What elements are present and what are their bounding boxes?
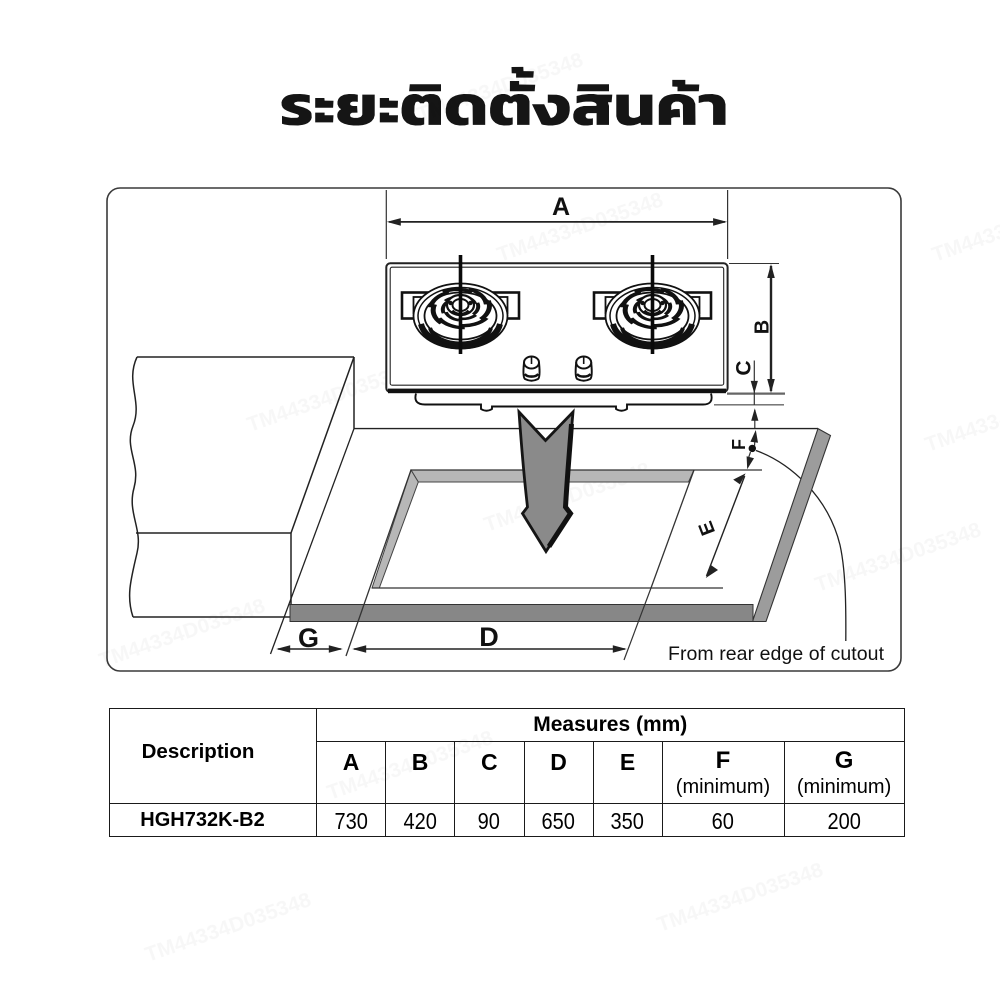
- svg-text:G: G: [298, 623, 319, 653]
- svg-text:A: A: [552, 193, 570, 221]
- svg-text:E: E: [695, 518, 720, 538]
- svg-text:TM44334D035348: TM44334D035348: [929, 188, 1000, 266]
- svg-text:TM44334D035348: TM44334D035348: [96, 594, 268, 672]
- svg-text:D: D: [479, 622, 499, 652]
- svg-text:B: B: [752, 320, 774, 334]
- svg-text:TM44334D035348: TM44334D035348: [654, 858, 826, 936]
- svg-text:C: C: [733, 360, 756, 375]
- svg-text:TM44334D035348: TM44334D035348: [414, 48, 586, 126]
- svg-text:TM44334D035348: TM44334D035348: [922, 378, 1000, 456]
- svg-text:TM44334D035348: TM44334D035348: [812, 518, 984, 596]
- svg-text:From rear edge of cutout: From rear edge of cutout: [668, 643, 885, 665]
- svg-text:F: F: [729, 439, 749, 450]
- svg-text:TM44334D035348: TM44334D035348: [142, 888, 314, 966]
- svg-text:TM44334D035348: TM44334D035348: [494, 188, 666, 266]
